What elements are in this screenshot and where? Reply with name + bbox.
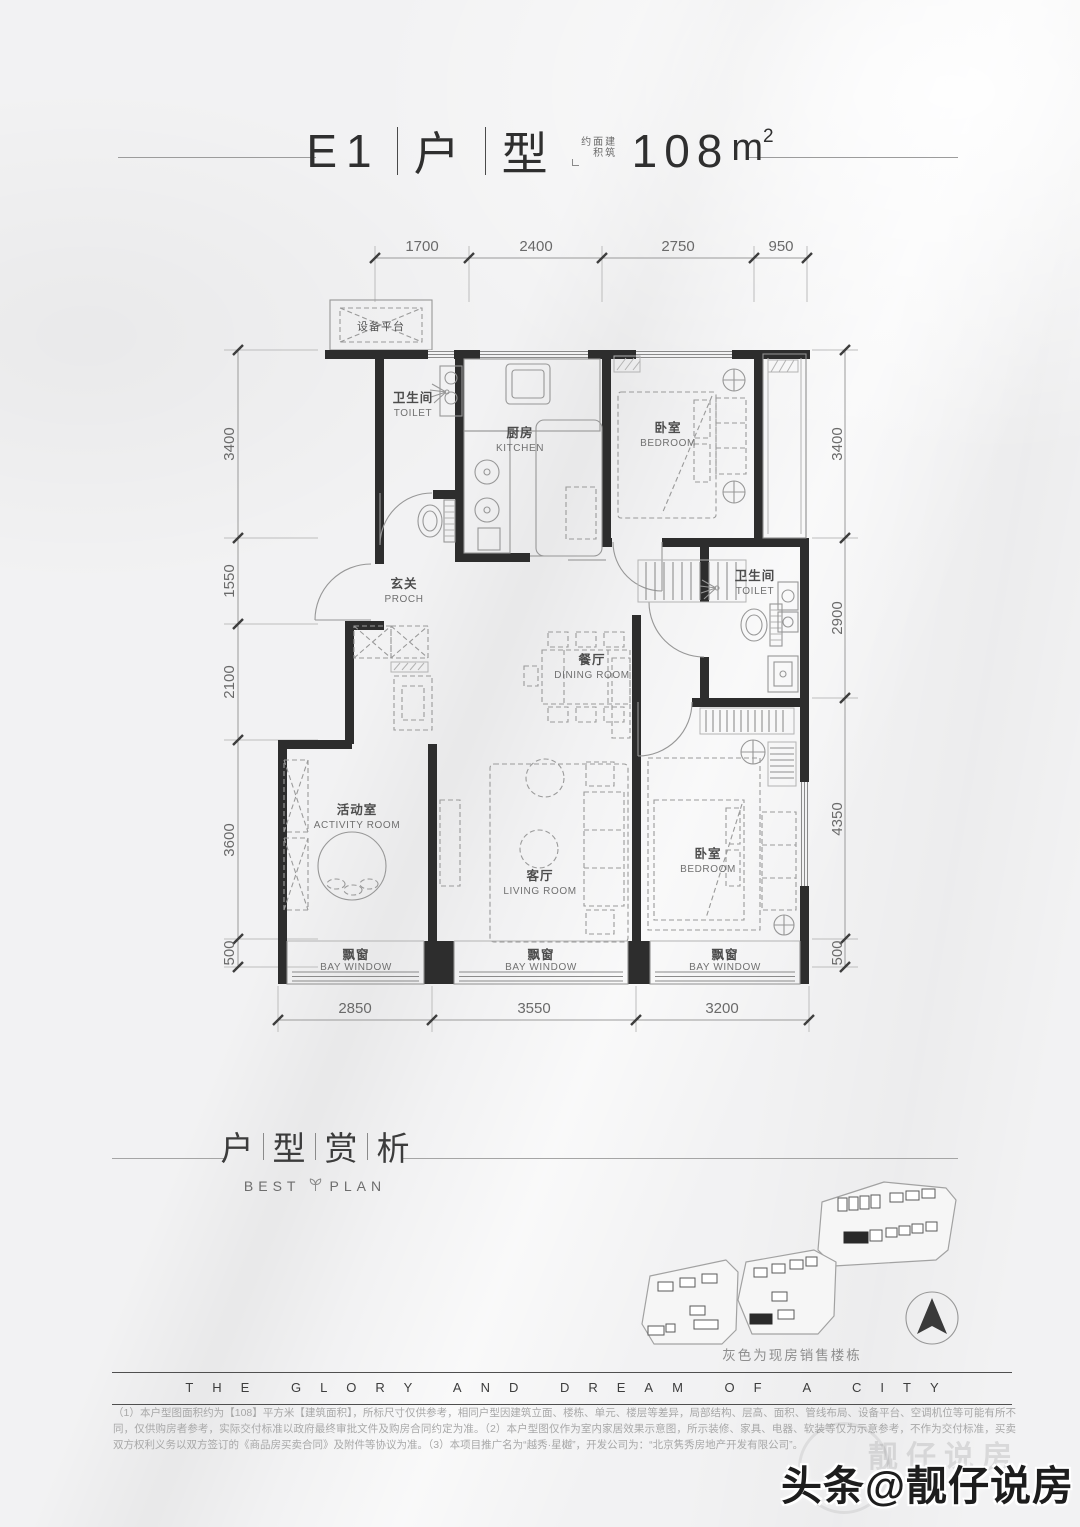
living-label-en: LIVING ROOM bbox=[503, 886, 576, 897]
section-title-en: BEST PLAN bbox=[218, 1177, 412, 1195]
bay1-label-zh: 飘窗 bbox=[342, 947, 369, 962]
toilet1-label-en: TOILET bbox=[394, 408, 432, 419]
section-char: 析 bbox=[377, 1122, 410, 1170]
dining-label-en: DINING ROOM bbox=[554, 670, 630, 681]
dim-right-4: 500 bbox=[829, 940, 846, 965]
dim-bottom-1: 2850 bbox=[338, 1000, 371, 1017]
dining-label-zh: 餐厅 bbox=[577, 652, 605, 667]
activity-room-furniture bbox=[284, 760, 386, 910]
siteplan-caption: 灰色为现房销售楼栋 bbox=[722, 1347, 862, 1363]
living-room-furniture bbox=[440, 759, 628, 942]
toilet2-door bbox=[649, 602, 704, 657]
section-title-zh: 户 型 赏 析 bbox=[218, 1122, 412, 1170]
floorplan-drawing: 1700 2400 2750 950 3400 1550 2100 3600 5… bbox=[0, 0, 1080, 1527]
bedroom2-furniture bbox=[648, 708, 796, 935]
section-divider bbox=[315, 1133, 316, 1160]
bedroom1-furniture bbox=[614, 356, 746, 518]
bedroom2-label-zh: 卧室 bbox=[694, 846, 721, 861]
living-label-zh: 客厅 bbox=[525, 868, 553, 883]
watermark-platform: 头条 bbox=[781, 1463, 865, 1509]
dim-left-2: 1550 bbox=[221, 564, 238, 597]
toilet1-label-zh: 卫生间 bbox=[393, 390, 434, 405]
dim-bottom-3: 3200 bbox=[705, 1000, 738, 1017]
toilet2-label-zh: 卫生间 bbox=[735, 568, 776, 583]
dim-right-1: 3400 bbox=[829, 427, 846, 460]
kitchen-fixtures bbox=[464, 359, 602, 556]
section-en-right: PLAN bbox=[330, 1178, 387, 1194]
porch-closets bbox=[354, 626, 432, 730]
bedroom2-door bbox=[638, 702, 692, 756]
equipment-platform-label: 设备平台 bbox=[357, 319, 405, 333]
hall-wardrobe bbox=[638, 560, 746, 602]
dim-right-2: 2900 bbox=[829, 601, 846, 634]
dim-top-1: 1700 bbox=[405, 238, 438, 255]
dimension-chain-top: 1700 2400 2750 950 bbox=[370, 238, 812, 302]
slogan-banner: THE GLORY AND DREAM OF A CITY bbox=[112, 1372, 1012, 1405]
dim-top-2: 2400 bbox=[519, 238, 552, 255]
porch-label-en: PROCH bbox=[384, 594, 423, 605]
kitchen-sliding-door bbox=[530, 556, 606, 560]
equipment-platform: 设备平台 bbox=[330, 300, 432, 350]
watermark-handle: @靓仔说房 bbox=[865, 1463, 1074, 1509]
section-char: 型 bbox=[273, 1122, 306, 1170]
kitchen-label-zh: 厨房 bbox=[506, 425, 533, 440]
bedroom1-label-en: BEDROOM bbox=[640, 438, 696, 449]
section-rule-left bbox=[112, 1158, 224, 1159]
bay3-label-en: BAY WINDOW bbox=[689, 962, 761, 973]
toilet1-door bbox=[380, 493, 432, 545]
dim-top-3: 2750 bbox=[661, 238, 694, 255]
bedroom1-label-zh: 卧室 bbox=[654, 420, 681, 435]
floorplan-poster: E1 户 型 建筑 面积 约 108 m 2 1700 2400 2750 95… bbox=[0, 0, 1080, 1527]
section-char: 赏 bbox=[325, 1122, 358, 1170]
dim-left-1: 3400 bbox=[221, 427, 238, 460]
dim-right-3: 4350 bbox=[829, 802, 846, 835]
toilet2-label-en: TOILET bbox=[736, 586, 774, 597]
dim-left-5: 500 bbox=[221, 940, 238, 965]
bay3-label-zh: 飘窗 bbox=[711, 947, 738, 962]
porch-label-zh: 玄关 bbox=[390, 576, 417, 591]
section-divider bbox=[367, 1133, 368, 1160]
ac-platform bbox=[763, 354, 806, 538]
dimension-chain-right: 3400 2900 4350 500 bbox=[812, 345, 858, 972]
dining-set bbox=[524, 632, 630, 738]
entry-door bbox=[315, 564, 371, 620]
section-char: 户 bbox=[221, 1122, 254, 1170]
bay2-label-zh: 飘窗 bbox=[527, 947, 554, 962]
slogan-text: THE GLORY AND DREAM OF A CITY bbox=[166, 1380, 957, 1395]
dim-bottom-2: 3550 bbox=[517, 1000, 550, 1017]
watermark: 头条@靓仔说房 bbox=[781, 1452, 1074, 1512]
dimension-chain-left: 3400 1550 2100 3600 500 bbox=[221, 345, 318, 972]
kitchen-label-en: KITCHEN bbox=[496, 443, 544, 454]
section-rule-right bbox=[402, 1158, 958, 1159]
north-arrow-icon bbox=[906, 1292, 958, 1344]
dimension-chain-bottom: 2850 3550 3200 bbox=[273, 986, 814, 1032]
section-divider bbox=[263, 1133, 264, 1160]
site-plan: 灰色为现房销售楼栋 bbox=[642, 1182, 958, 1363]
activity-label-zh: 活动室 bbox=[337, 802, 378, 817]
bedroom2-label-en: BEDROOM bbox=[680, 864, 736, 875]
dim-left-3: 2100 bbox=[221, 665, 238, 698]
activity-label-en: ACTIVITY ROOM bbox=[314, 820, 401, 831]
dim-top-4: 950 bbox=[768, 238, 793, 255]
tree-icon bbox=[308, 1177, 323, 1195]
bay2-label-en: BAY WINDOW bbox=[505, 962, 577, 973]
section-header: 户 型 赏 析 BEST PLAN bbox=[218, 1122, 412, 1195]
dim-left-4: 3600 bbox=[221, 823, 238, 856]
section-en-left: BEST bbox=[244, 1178, 301, 1194]
bay1-label-en: BAY WINDOW bbox=[320, 962, 392, 973]
